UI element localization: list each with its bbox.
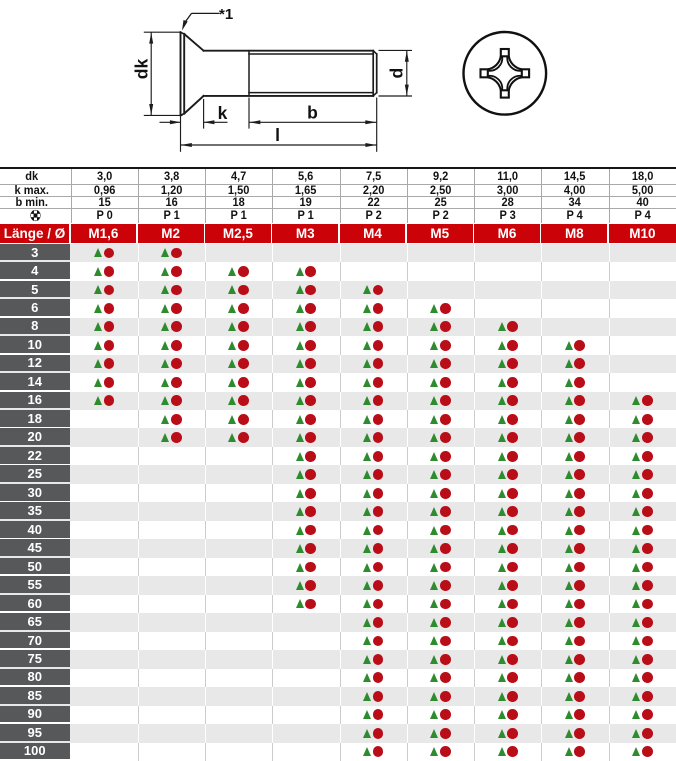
svg-text:*1: *1 [219,6,233,23]
svg-text:dk: dk [132,59,152,80]
svg-text:l: l [275,125,280,145]
svg-text:d: d [387,68,407,79]
svg-text:k: k [218,103,228,123]
svg-text:b: b [307,103,318,123]
